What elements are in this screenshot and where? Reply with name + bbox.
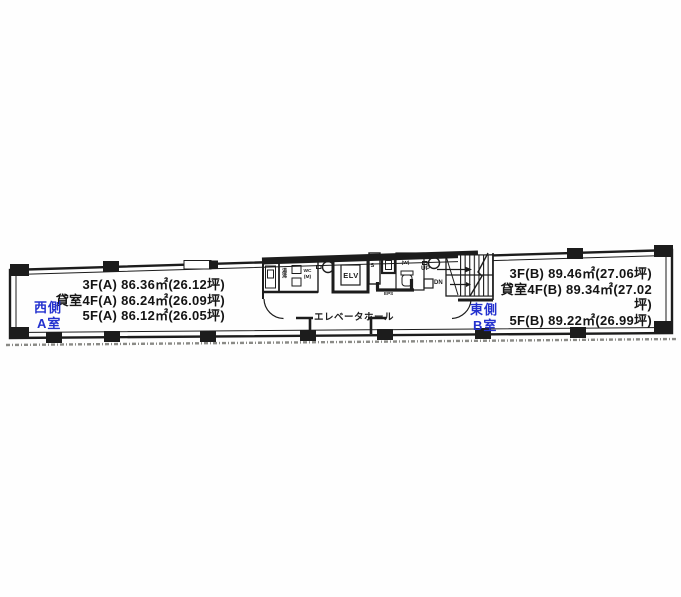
window-opening [184, 261, 218, 270]
kitchenette-room [263, 261, 279, 292]
column [200, 331, 216, 342]
basin-icon [317, 262, 334, 273]
column [654, 245, 673, 257]
kitchenette-label: 湯沸 [281, 268, 288, 278]
column [10, 327, 29, 339]
door-arc-west [264, 299, 284, 319]
column [654, 321, 673, 333]
area-line: 5F(A) 86.12㎡(26.05坪) [40, 308, 225, 324]
up-arrow [437, 267, 472, 273]
elevator-hall-label: エレベータホール [314, 309, 394, 323]
wc-women-label: WC(W) [399, 255, 412, 267]
column [103, 261, 119, 272]
area-line: 貸室4F(A) 86.24㎡(26.09坪) [40, 293, 225, 309]
sink-icon [268, 270, 274, 278]
floor-plan-page: 3F(A) 86.36㎡(26.12坪) 貸室4F(A) 86.24㎡(26.0… [0, 0, 681, 597]
elevator-label: ELV [337, 271, 365, 280]
wc-men-label: WC(M) [301, 269, 314, 281]
east-unit-areas: 3F(B) 89.46㎡(27.06坪) 貸室4F(B) 89.34㎡(27.0… [492, 266, 652, 328]
area-line: 貸室4F(B) 89.34㎡(27.02坪) [492, 282, 652, 313]
column [377, 329, 393, 340]
eps-label: EPS [384, 291, 393, 296]
column [570, 327, 586, 338]
stairs-down-label: DN [434, 280, 443, 286]
stair-treads-lower [458, 276, 493, 296]
door-arc-east [452, 300, 471, 319]
stair-treads-upper [458, 256, 493, 276]
east-room-label: B室 [473, 315, 497, 334]
column [10, 264, 29, 276]
area-line: 3F(B) 89.46㎡(27.06坪) [492, 266, 652, 282]
toilet-icon [401, 271, 413, 275]
eps-wall [376, 279, 433, 290]
area-line: 3F(A) 86.36㎡(26.12坪) [40, 277, 225, 293]
stairs-up-label: UP [421, 265, 430, 272]
west-room-label: A室 [37, 313, 61, 332]
west-unit-areas: 3F(A) 86.36㎡(26.12坪) 貸室4F(A) 86.24㎡(26.0… [40, 277, 225, 324]
area-line: 5F(B) 89.22㎡(26.99坪) [492, 313, 652, 329]
column [104, 331, 120, 342]
column [300, 330, 316, 341]
urinal-icon [292, 278, 301, 286]
pipe-shaft-label: PS [370, 256, 376, 270]
column [46, 332, 62, 343]
column [567, 248, 583, 259]
stairs [437, 253, 493, 296]
